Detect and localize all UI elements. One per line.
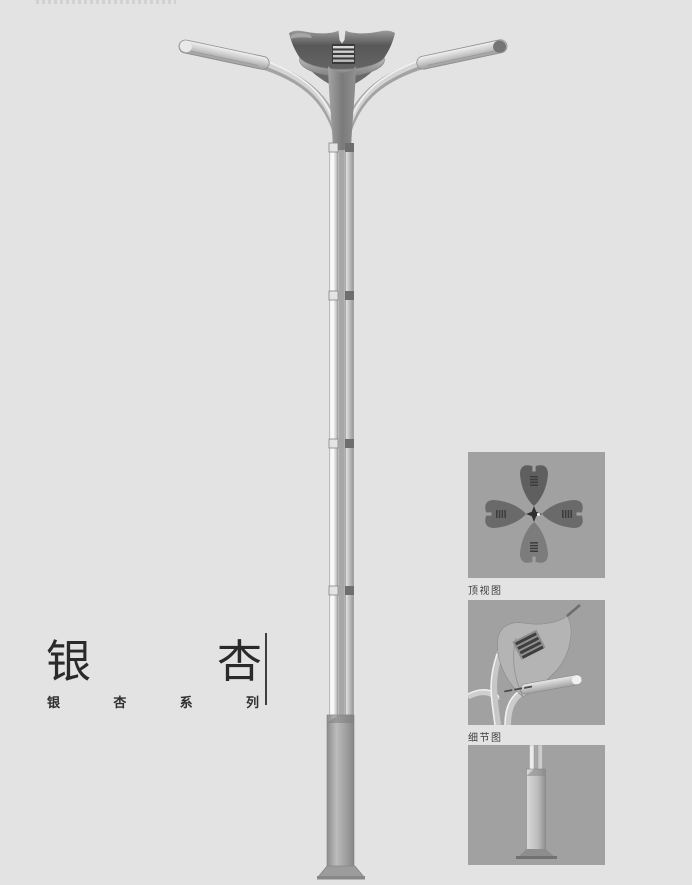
panel-label-close-up: 细节图 [468,729,605,742]
lamp-stem [328,66,356,150]
lamp-base [317,715,365,880]
lamp-head-left [178,39,271,71]
title-char: 杏 [217,639,262,684]
panel-label-base [468,869,605,882]
title-divider-line [265,633,267,705]
series-char: 系 [180,692,193,711]
lamp-head-right [416,39,509,71]
panel-label-top-view: 顶视图 [468,582,605,595]
series-char: 杏 [113,692,126,711]
lamp-pole [329,143,354,715]
detail-panel-top-view: 顶视图 [468,452,605,595]
detail-view-image [468,600,605,725]
catalog-page: 银 杏 银 杏 系 列 [0,0,692,885]
base-view-image [468,745,605,865]
series-label: 银 杏 系 列 [47,692,259,711]
title-char: 银 [46,639,91,684]
series-char: 列 [246,692,259,711]
detail-panel-base [468,745,605,882]
product-title: 银 杏 [46,639,262,684]
detail-panel-close-up: 细节图 [468,600,605,742]
series-char: 银 [47,692,60,711]
top-view-image [468,452,605,578]
